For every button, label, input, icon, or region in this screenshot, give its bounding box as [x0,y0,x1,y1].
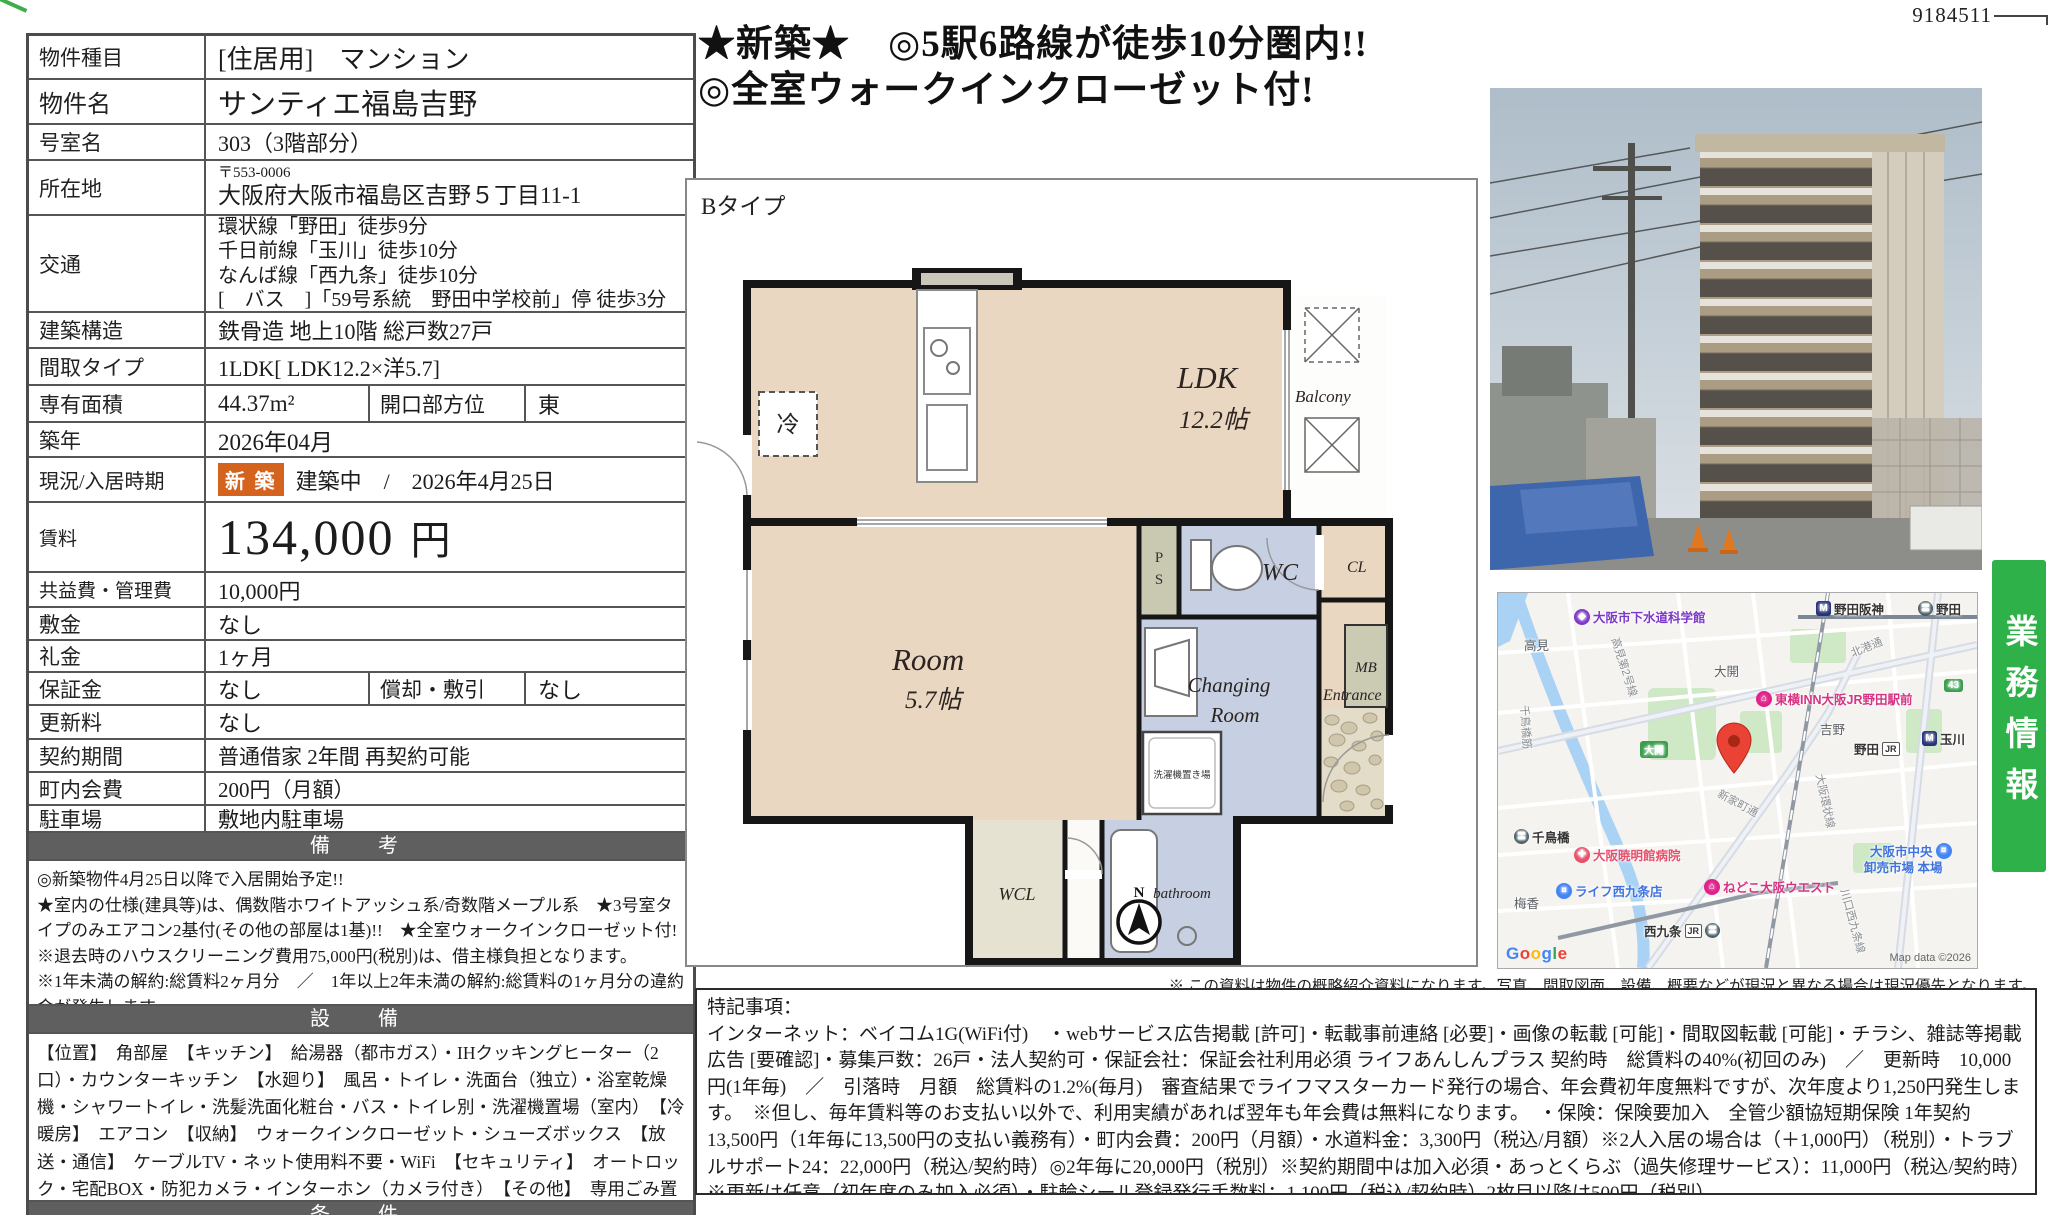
map-label-nishikujo[interactable]: 西九条 JR 〓 [1644,921,1720,940]
built-value: 2026年04月 [206,423,693,456]
access-line: [ バス ]「59号系統 野田中学校前」停 徒歩3分 [218,288,666,312]
headline-line2: ◎全室ウォークインクローゼット付! [698,68,1488,114]
map-label-tamagawa[interactable]: M 玉川 [1922,729,1965,748]
corner-rule [1994,15,2048,25]
property-table: 物件種目 [住居用] マンション 物件名 サンティエ福島吉野 号室名 303（3… [26,33,696,1215]
layout-value: 1LDK[ LDK12.2×洋5.7] [206,349,693,384]
vanity-icon [1145,628,1197,716]
map-roadshield-43: 43 [1944,679,1963,692]
table-row: 契約期間 普通借家 2年間 再契約可能 [29,740,693,773]
row-label: 敷金 [29,608,206,639]
row-label: 保証金 [29,673,206,704]
changing-label1: Changing [1188,673,1271,697]
row-label: 町内会費 [29,773,206,804]
map-label-ohiraki[interactable]: 大開 [1714,661,1739,680]
table-row: 賃料 134,000 円 [29,503,693,573]
map-roadbadge-ohiraki: 大開 [1640,741,1668,758]
special-notes: 特記事項： インターネット：ベイコム1G(WiFi付) ・webサービス広告掲載… [695,988,2037,1195]
table-row: 礼金 1ヶ月 [29,641,693,673]
corner-mark [0,0,27,13]
facilities-text: 【位置】 角部屋 【キッチン】 給湯器（都市ガス）・IHクッキングヒーター（2口… [29,1034,693,1202]
rent-unit: 円 [411,508,451,566]
row-label: 物件名 [29,80,206,123]
map-label-noda[interactable]: 〓 野田 [1918,599,1961,618]
row-label: 礼金 [29,641,206,671]
table-row: 築年 2026年04月 [29,423,693,458]
remarks-line: ★室内の仕様(建具等)は、偶数階ホワイトアッシュ系/奇数階メープル系 ★3号室タ… [37,893,685,944]
svg-text:MB: MB [1354,660,1377,676]
row-label: 物件種目 [29,36,206,78]
row-label: 現況/入居時期 [29,458,206,501]
table-row: 保証金 なし 償却・敷引 なし [29,673,693,706]
fridge: 冷 [759,392,817,456]
map-label-yoshino[interactable]: 吉野 [1820,719,1845,738]
new-construction-badge: 新 築 [218,463,284,496]
document-number: 9184511 [1912,3,1992,28]
access-line: 千日前線「玉川」徒歩10分 [218,239,458,263]
svg-text:冷: 冷 [777,412,800,437]
room-no-value: 303（3階部分） [206,125,693,159]
area-value: 44.37m² [206,386,368,421]
row-label: 共益費・管理費 [29,573,206,606]
headline: ★新築★ ◎5駅6路線が徒歩10分圏内!! ◎全室ウォークインクローゼット付! [698,22,1488,115]
access-line: 環状線「野田」徒歩9分 [218,215,428,239]
room-label: Room [891,642,964,677]
business-info-label: 業務情報 [1995,614,2043,818]
map-credit: Map data ©2026 [1890,952,1972,964]
parking-value: 敷地内駐車場 [206,806,693,831]
map-label-takami[interactable]: 高見 [1524,635,1549,654]
conditions-header: 条 件 [29,1202,693,1215]
store-icon: ¤ [1556,883,1572,899]
business-info-banner: 業務情報 [1992,560,2046,872]
metro-icon: M [1816,601,1831,616]
row-label: 交通 [29,216,206,311]
map-canvas [1498,593,1977,968]
table-row: 物件名 サンティエ福島吉野 [29,80,693,125]
map-label-nodahanshin[interactable]: M 野田阪神 [1816,599,1884,618]
map-label-museum[interactable]: ◆ 大阪市下水道科学館 [1574,607,1706,626]
table-row: 号室名 303（3階部分） [29,125,693,161]
common-fee-value: 10,000円 [206,573,693,606]
changing-label2: Room [1210,703,1260,727]
special-notes-title: 特記事項： [707,995,2025,1022]
hospital-icon: ✚ [1574,847,1590,863]
access-line: なんば線「西九条」徒歩10分 [218,264,478,288]
table-row: 物件種目 [住居用] マンション [29,36,693,80]
structure-value: 鉄骨造 地上10階 総戸数27戸 [206,313,693,347]
direction-value: 東 [526,386,693,421]
ldk-size: 12.2帖 [1179,407,1251,434]
row-label: 専有面積 [29,386,206,421]
cl-label: CL [1347,559,1367,576]
map-label-toyoko[interactable]: ⌂ 東横INN大阪JR野田駅前 [1756,689,1913,708]
row-label: 更新料 [29,706,206,738]
floor-plan: Bタイプ [685,178,1478,967]
building-photo [1490,88,1982,570]
balcony-label: Balcony [1295,387,1351,406]
town-fee-value: 200円（月額） [206,773,693,804]
map-label-hospital[interactable]: ✚ 大阪暁明館病院 [1574,845,1681,864]
table-row: 共益費・管理費 10,000円 [29,573,693,608]
property-type-value: [住居用] マンション [206,36,693,78]
deposit-value: なし [206,608,693,639]
remarks-text: ◎新築物件4月25日以降で入居開始予定!! ★室内の仕様(建具等)は、偶数階ホワ… [29,861,693,1006]
jr-icon: JR [1882,742,1900,756]
remarks-header: 備 考 [29,833,693,861]
row-label: 号室名 [29,125,206,159]
row-label: 賃料 [29,503,206,571]
amortization-value: なし [526,673,693,704]
map-label-noda-jr[interactable]: 野田 JR [1854,739,1900,758]
facilities-header: 設 備 [29,1006,693,1034]
wcl-label: WCL [998,884,1035,904]
row-label: 間取タイプ [29,349,206,384]
guarantee-value: なし [206,673,368,704]
map-label-baika[interactable]: 梅香 [1514,893,1539,912]
ldk-label: LDK [1176,360,1240,395]
row-label: 駐車場 [29,806,206,831]
kitchen-counter [917,290,977,482]
entrance-label: Entrance [1322,687,1382,704]
remarks-line: ◎新築物件4月25日以降で入居開始予定!! [37,867,685,893]
headline-line1: ★新築★ ◎5駅6路線が徒歩10分圏内!! [698,22,1488,68]
metro-icon: M [1922,731,1937,746]
svg-text:洗濯機置き場: 洗濯機置き場 [1153,769,1211,781]
table-row: 敷金 なし [29,608,693,641]
property-flyer: 9184511 物件種目 [住居用] マンション 物件名 サンティエ福島吉野 号… [0,0,2056,1215]
special-notes-body: インターネット：ベイコム1G(WiFi付) ・webサービス広告掲載 [許可]・… [707,1022,2025,1195]
station-icon: 〓 [1514,829,1529,844]
station-icon: 〓 [1705,923,1720,938]
museum-icon: ◆ [1574,609,1590,625]
map-label-nedoko[interactable]: ⌂ ねどこ大阪ウエスト [1704,877,1835,896]
bathroom-label: bathroom [1153,886,1211,902]
table-row: 間取タイプ 1LDK[ LDK12.2×洋5.7] [29,349,693,386]
status-value: 建築中 / 2026年4月25日 [296,464,555,496]
row-label: 開口部方位 [368,386,526,421]
row-label: 築年 [29,423,206,456]
table-row: 建築構造 鉄骨造 地上10階 総戸数27戸 [29,313,693,349]
ps-label: S [1155,572,1163,588]
map-label-life[interactable]: ¤ ライフ西九条店 [1556,881,1663,900]
hotel-icon: ⌂ [1704,879,1720,895]
room-size: 5.7帖 [905,687,964,714]
table-row: 現況/入居時期 新 築 建築中 / 2026年4月25日 [29,458,693,503]
contract-value: 普通借家 2年間 再契約可能 [206,740,693,771]
map-label-chidoribashisuji[interactable]: 千鳥橋筋 [1516,704,1535,749]
property-name-value: サンティエ福島吉野 [206,80,693,123]
table-row: 交通 環状線「野田」徒歩9分 千日前線「玉川」徒歩10分 なんば線「西九条」徒歩… [29,216,693,313]
ps-label: P [1155,550,1163,566]
row-label: 所在地 [29,161,206,214]
map-label-chidoribashi[interactable]: 〓 千鳥橋 [1514,827,1570,846]
google-logo[interactable]: Google [1506,944,1568,964]
row-label: 建築構造 [29,313,206,347]
location-map[interactable]: ◆ 大阪市下水道科学館 M 野田阪神 〓 野田 高見 高見第2号線 大開 北港通… [1497,592,1978,969]
plan-type-label: Bタイプ [701,194,785,219]
rent-value: 134,000 [218,508,395,566]
table-row: 更新料 なし [29,706,693,740]
remarks-line: ※1年未満の解約:総賃料2ヶ月分 ／ 1年以上2年未満の解約:総賃料の1ヶ月分の… [37,969,685,1006]
address-value: 大阪府大阪市福島区吉野５丁目11-1 [218,182,581,210]
table-row: 町内会費 200円（月額） [29,773,693,806]
renewal-fee-value: なし [206,706,693,738]
svg-text:N: N [1134,885,1145,901]
station-icon: 〓 [1918,601,1933,616]
row-label: 契約期間 [29,740,206,771]
hotel-icon: ⌂ [1756,691,1772,707]
floor-plan-drawing: Bタイプ [687,180,1476,965]
table-row: 所在地 〒553-0006 大阪府大阪市福島区吉野５丁目11-1 [29,161,693,216]
table-row: 駐車場 敷地内駐車場 [29,806,693,833]
jr-icon: JR [1685,924,1703,938]
postal-code: 〒553-0006 [218,165,291,182]
row-label: 償却・敷引 [368,673,526,704]
wc-label: WC [1262,560,1299,586]
table-row: 専有面積 44.37m² 開口部方位 東 [29,386,693,423]
map-label-ichiba2[interactable]: 卸売市場 本場 [1864,857,1942,876]
vent [921,273,1013,285]
remarks-line: ※退去時のハウスクリーニング費用75,000円(税別)は、借主様負担となります。 [37,944,685,970]
key-money-value: 1ヶ月 [206,641,693,671]
laundry-space: 洗濯機置き場 [1143,732,1221,814]
